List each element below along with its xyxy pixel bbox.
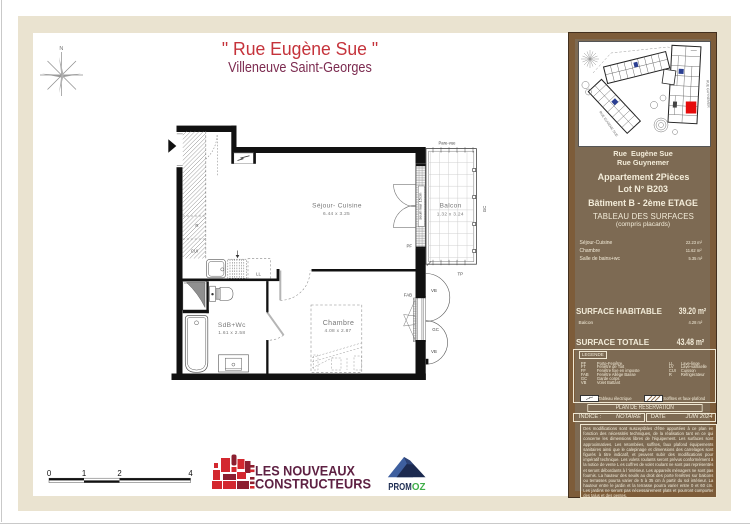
svg-text:1.32 x 3.24: 1.32 x 3.24 [437,211,464,217]
svg-text:0: 0 [47,469,52,478]
svg-text:CONSTRUCTEURS: CONSTRUCTEURS [255,477,371,492]
svg-text:TP: TP [458,272,464,277]
svg-text:PF: PF [407,244,413,249]
svg-text:6.44 x 3.25: 6.44 x 3.25 [323,211,350,217]
svg-text:1.61 x 2.58: 1.61 x 2.58 [218,330,245,336]
svg-text:Pare-vue: Pare-vue [439,141,457,146]
svg-text:R: R [195,223,198,228]
svg-text:2: 2 [117,469,121,478]
svg-text:RUE GUYNEMER: RUE GUYNEMER [706,79,710,107]
svg-text:GC: GC [432,327,439,332]
svg-text:OZ: OZ [412,482,426,493]
svg-text:Chambre: Chambre [323,320,355,327]
svg-text:CUI: CUI [191,249,199,254]
svg-text:SdB+Wc: SdB+Wc [218,322,246,329]
svg-text:N: N [59,46,63,52]
svg-text:seuil mur 15cm: seuil mur 15cm [418,192,423,220]
svg-text:4: 4 [188,469,193,478]
svg-text:PROM: PROM [388,482,411,493]
svg-text:GC: GC [482,206,487,213]
svg-text:Séjour- Cuisine: Séjour- Cuisine [312,202,362,209]
svg-text:Balcon: Balcon [440,203,462,210]
svg-text:LL: LL [256,272,261,277]
svg-text:4.08 x 2.87: 4.08 x 2.87 [324,328,351,334]
svg-text:VB: VB [431,288,437,293]
svg-text:VB: VB [431,349,437,354]
svg-text:FAB: FAB [404,293,412,298]
svg-text:1: 1 [82,469,86,478]
